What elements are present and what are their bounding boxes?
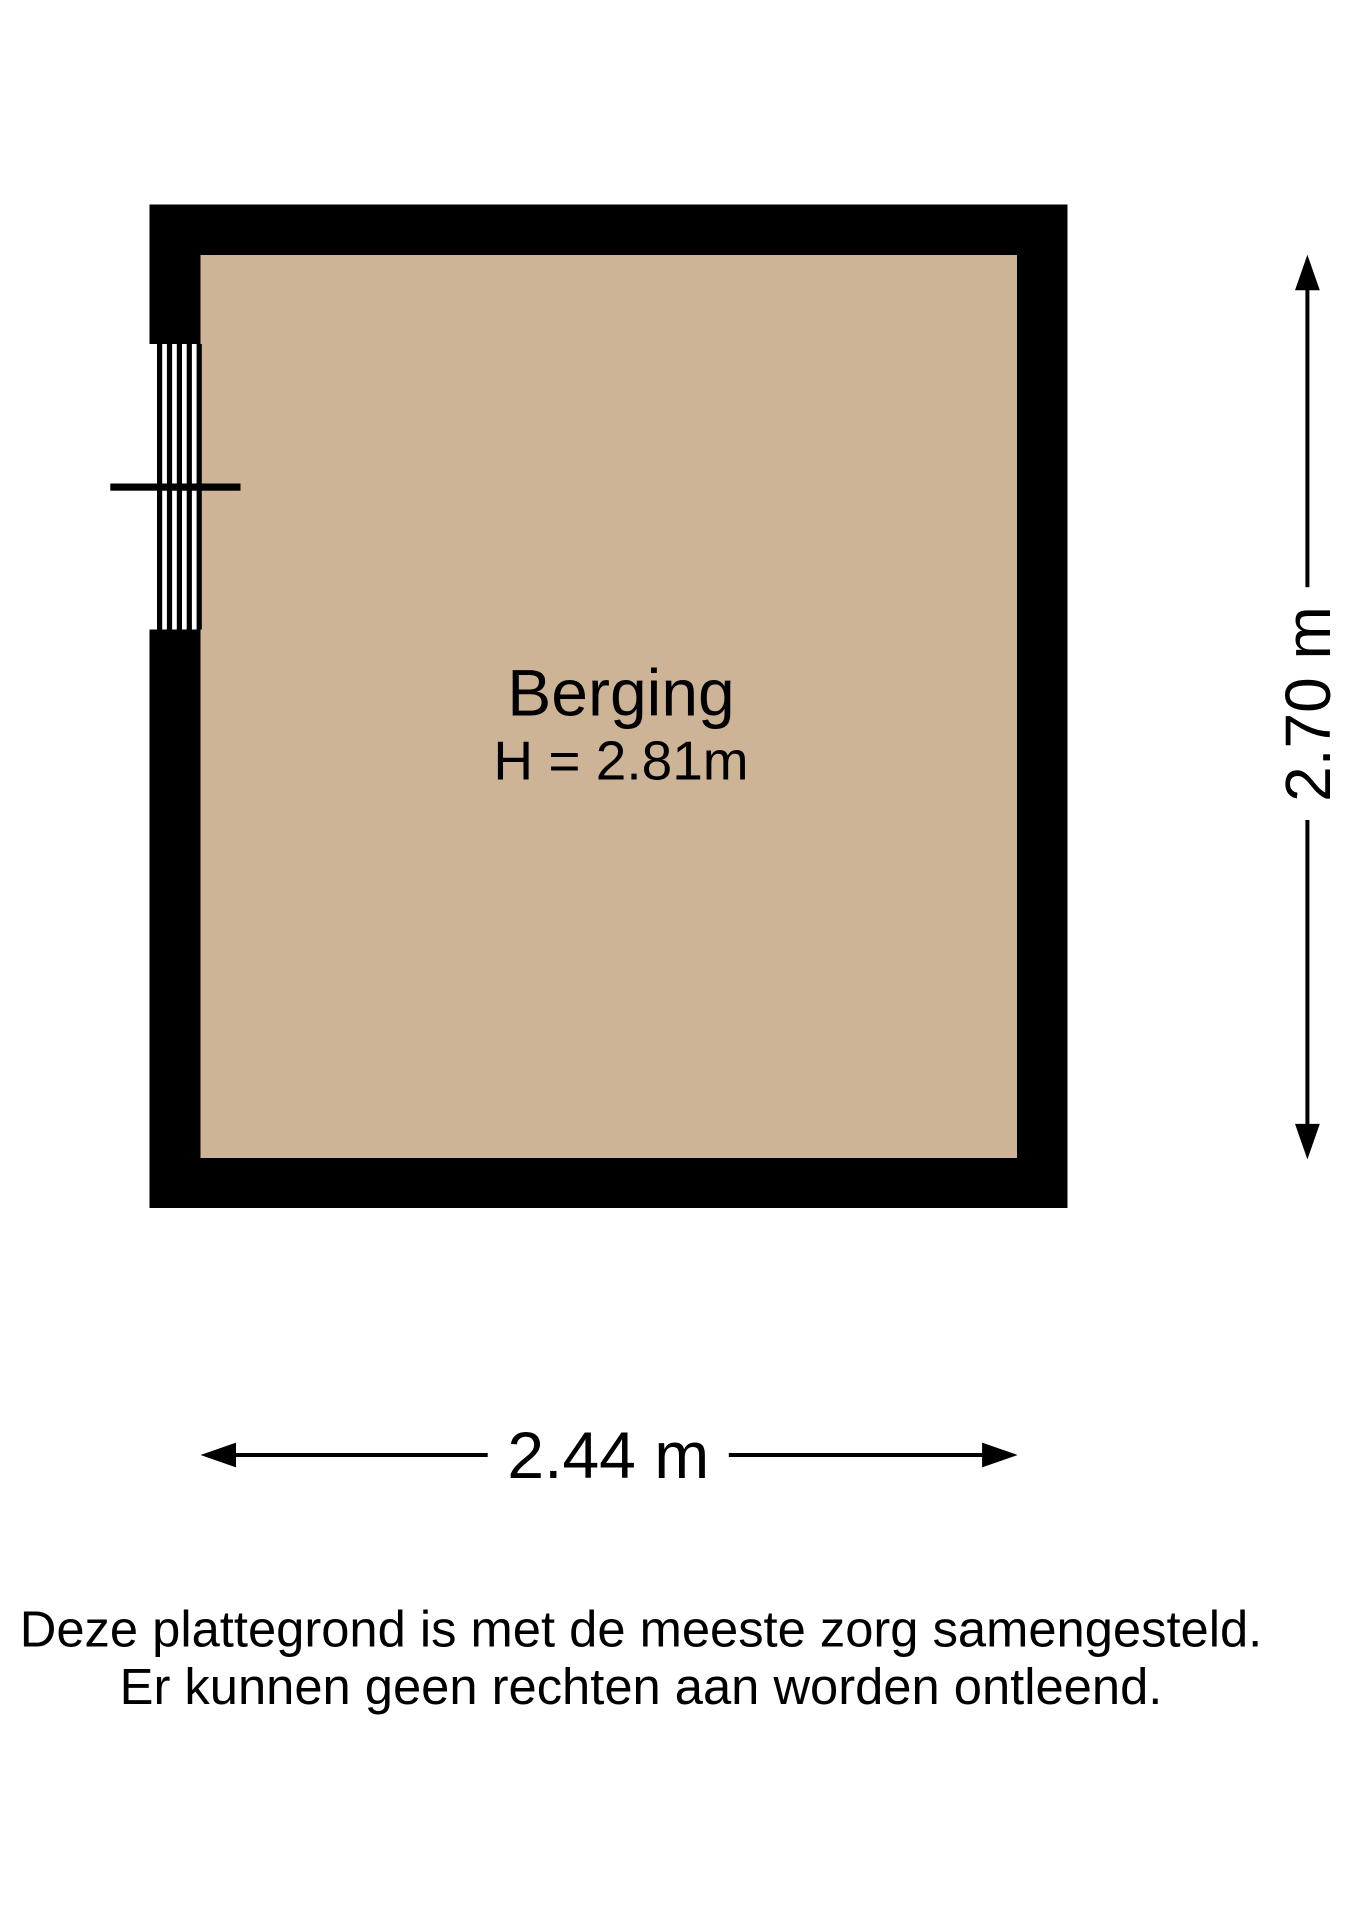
svg-text:2.70 m: 2.70 m xyxy=(1272,606,1344,802)
svg-text:Deze plattegrond is met de mee: Deze plattegrond is met de meeste zorg s… xyxy=(20,1600,1263,1657)
svg-text:H = 2.81m: H = 2.81m xyxy=(493,730,748,792)
svg-text:Er kunnen geen rechten aan wor: Er kunnen geen rechten aan worden ontlee… xyxy=(120,1658,1163,1715)
svg-text:Berging: Berging xyxy=(507,656,735,730)
svg-text:2.44 m: 2.44 m xyxy=(507,1418,709,1492)
